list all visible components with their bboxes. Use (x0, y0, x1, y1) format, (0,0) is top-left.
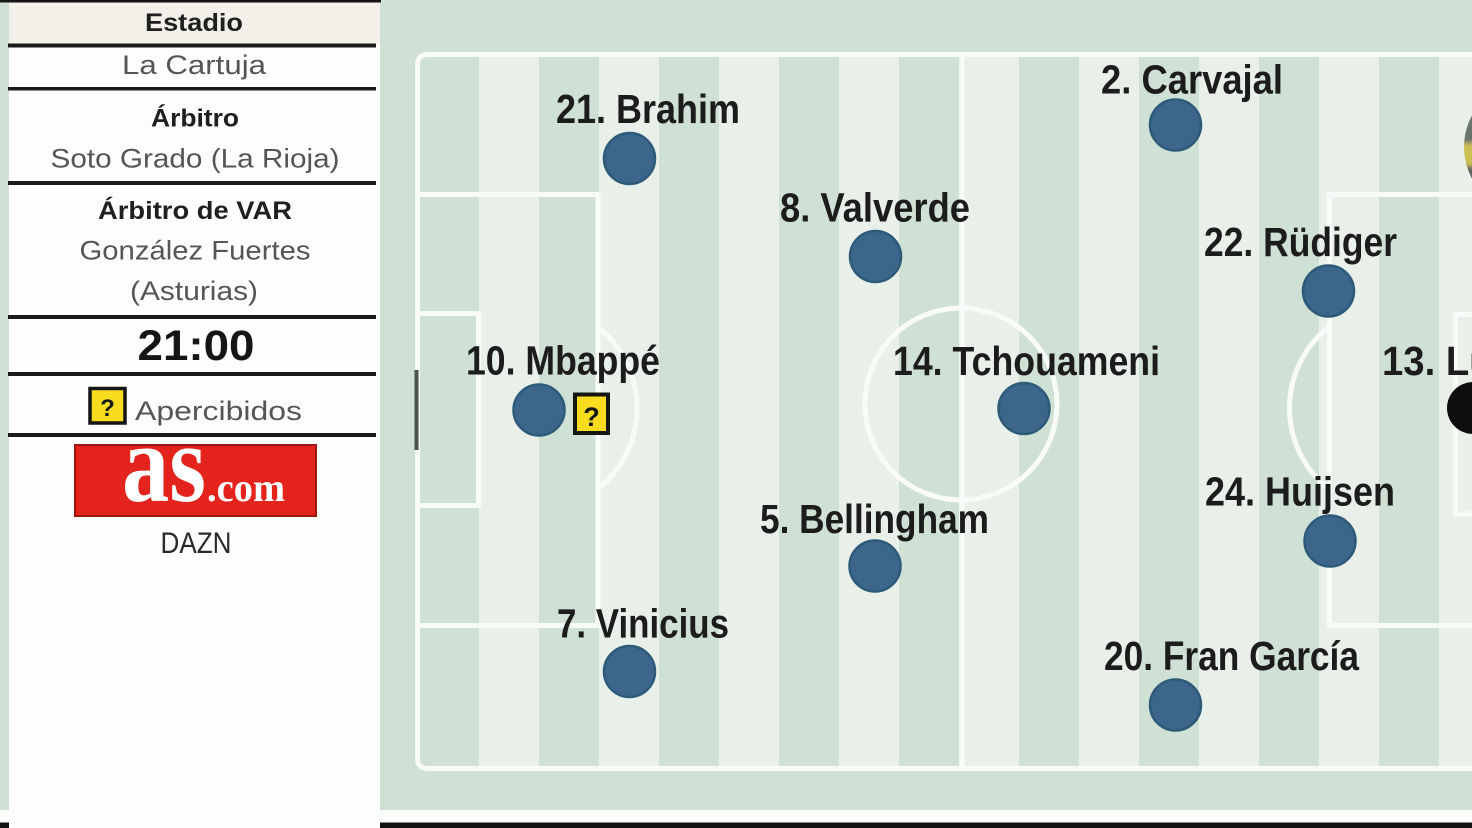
svg-text:13. Lunin: 13. Lunin (1382, 338, 1472, 384)
svg-text:5. Bellingham: 5. Bellingham (760, 496, 989, 542)
svg-text:21:00: 21:00 (138, 322, 255, 370)
svg-text:(Asturias): (Asturias) (130, 276, 258, 306)
svg-text:Estadio: Estadio (145, 9, 243, 37)
svg-text:21. Brahim: 21. Brahim (556, 86, 740, 132)
svg-text:7. Vinicius: 7. Vinicius (557, 601, 729, 647)
svg-text:14. Tchouameni: 14. Tchouameni (893, 338, 1160, 384)
svg-text:as: as (122, 403, 206, 526)
svg-text:20. Fran García: 20. Fran García (1104, 633, 1360, 679)
svg-text:González Fuertes: González Fuertes (80, 236, 311, 266)
svg-text:8. Valverde: 8. Valverde (780, 185, 970, 231)
svg-text:?: ? (583, 402, 600, 432)
svg-text:La Cartuja: La Cartuja (122, 50, 267, 80)
svg-text:.com: .com (207, 465, 285, 510)
svg-text:Soto Grado (La Rioja): Soto Grado (La Rioja) (51, 144, 340, 174)
svg-text:10. Mbappé: 10. Mbappé (466, 338, 660, 384)
svg-text:Árbitro de VAR: Árbitro de VAR (98, 196, 292, 225)
svg-text:2. Carvajal: 2. Carvajal (1101, 57, 1283, 103)
svg-text:DAZN: DAZN (161, 527, 232, 560)
svg-text:?: ? (100, 395, 115, 422)
svg-text:Árbitro: Árbitro (151, 104, 239, 133)
svg-text:24. Huijsen: 24. Huijsen (1205, 469, 1395, 515)
svg-text:22. Rüdiger: 22. Rüdiger (1204, 219, 1397, 265)
